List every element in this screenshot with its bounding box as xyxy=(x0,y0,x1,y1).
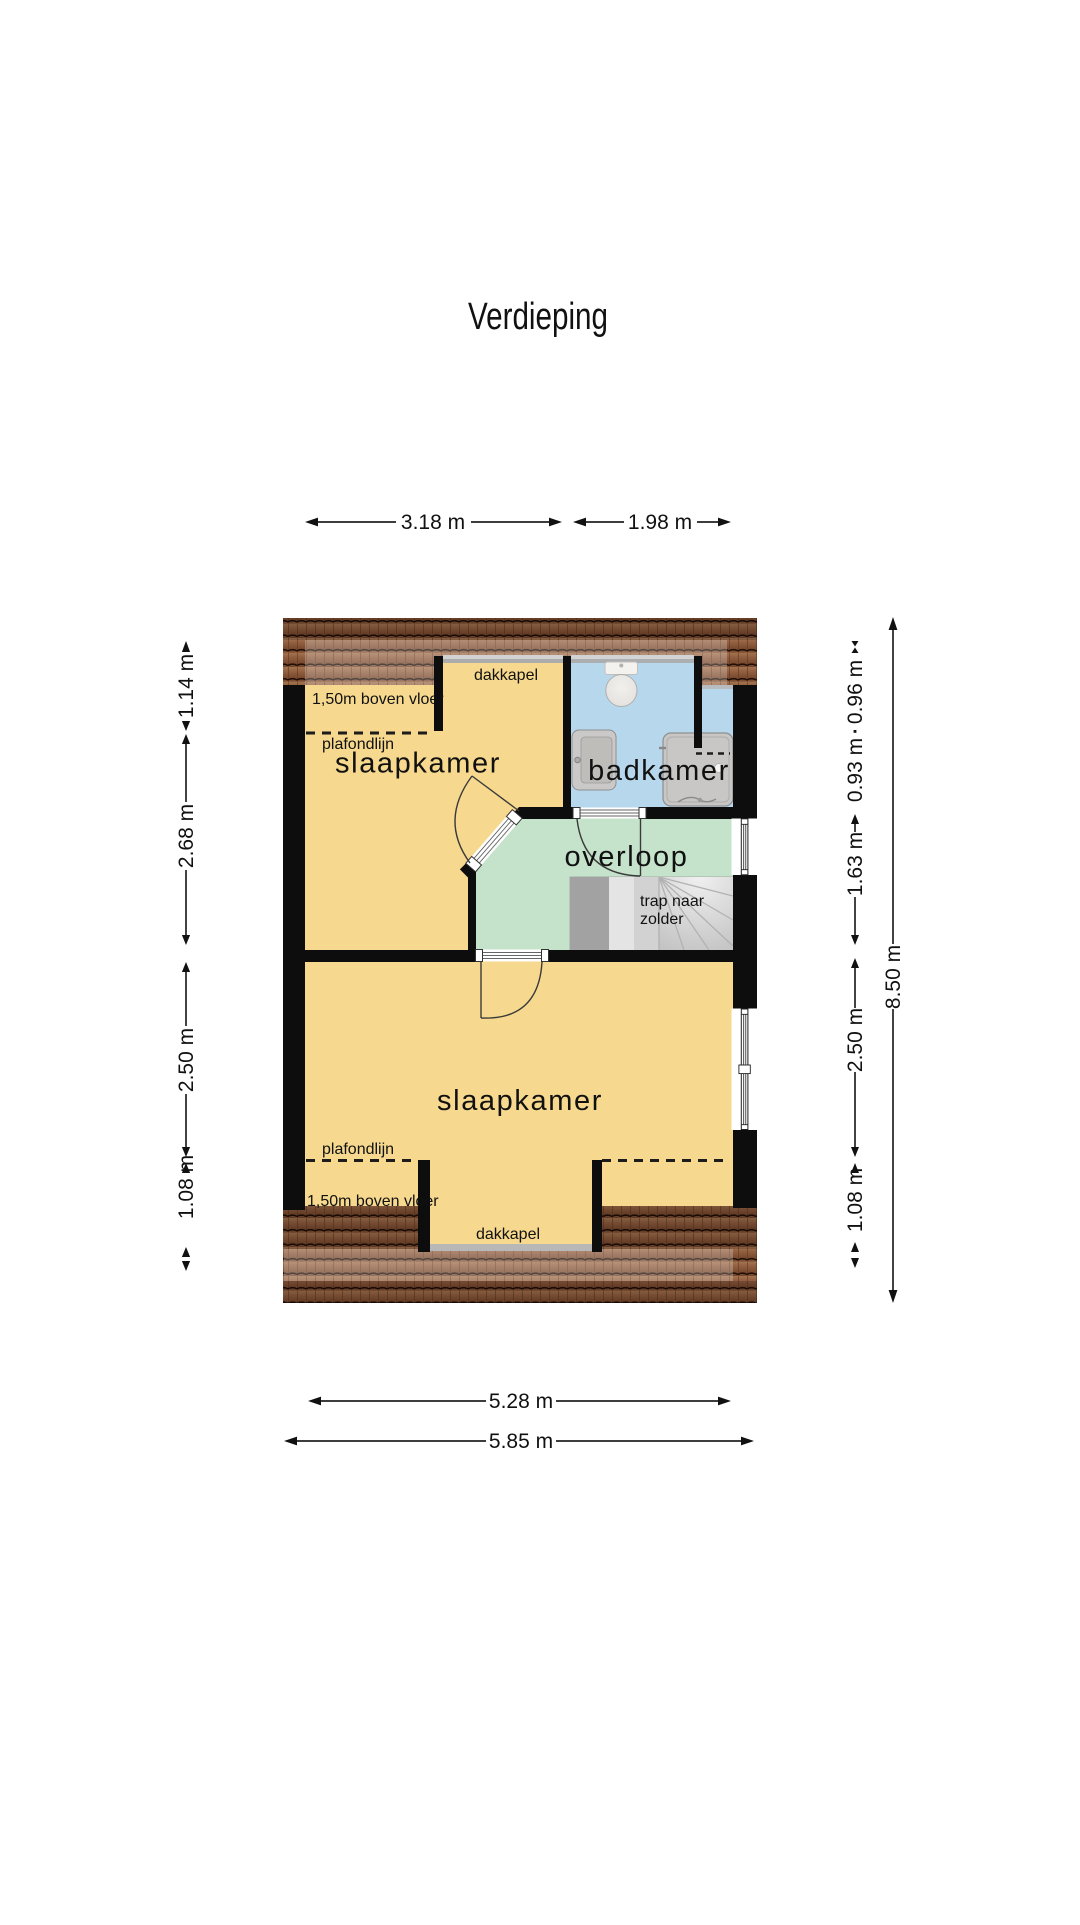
svg-text:2.50 m: 2.50 m xyxy=(175,1028,198,1092)
svg-text:3.18 m: 3.18 m xyxy=(401,511,465,534)
svg-text:1.14 m: 1.14 m xyxy=(175,654,198,718)
svg-text:1,50m boven vloer: 1,50m boven vloer xyxy=(307,1193,439,1210)
svg-text:dakkapel: dakkapel xyxy=(474,667,538,684)
svg-text:2.68 m: 2.68 m xyxy=(175,804,198,868)
svg-text:5.85 m: 5.85 m xyxy=(489,1430,553,1453)
svg-text:overloop: overloop xyxy=(564,841,688,873)
svg-text:badkamer: badkamer xyxy=(588,755,730,787)
svg-text:1,50m boven vloer: 1,50m boven vloer xyxy=(312,691,444,708)
svg-text:plafondlijn: plafondlijn xyxy=(322,736,394,753)
svg-text:Verdieping: Verdieping xyxy=(468,296,608,338)
svg-text:8.50 m: 8.50 m xyxy=(882,945,905,1009)
svg-text:1.08 m: 1.08 m xyxy=(844,1168,867,1232)
svg-text:2.50 m: 2.50 m xyxy=(844,1008,867,1072)
svg-text:0.93 m: 0.93 m xyxy=(844,738,867,802)
svg-text:trap naar: trap naar xyxy=(640,893,705,910)
svg-text:5.28 m: 5.28 m xyxy=(489,1390,553,1413)
svg-text:slaapkamer: slaapkamer xyxy=(437,1085,603,1117)
svg-text:zolder: zolder xyxy=(640,911,684,928)
svg-text:1.08 m: 1.08 m xyxy=(175,1155,198,1219)
svg-text:0.96 m: 0.96 m xyxy=(844,660,867,724)
svg-text:plafondlijn: plafondlijn xyxy=(322,1141,394,1158)
svg-text:1.63 m: 1.63 m xyxy=(844,832,867,896)
svg-text:1.98 m: 1.98 m xyxy=(628,511,692,534)
svg-text:dakkapel: dakkapel xyxy=(476,1226,540,1243)
